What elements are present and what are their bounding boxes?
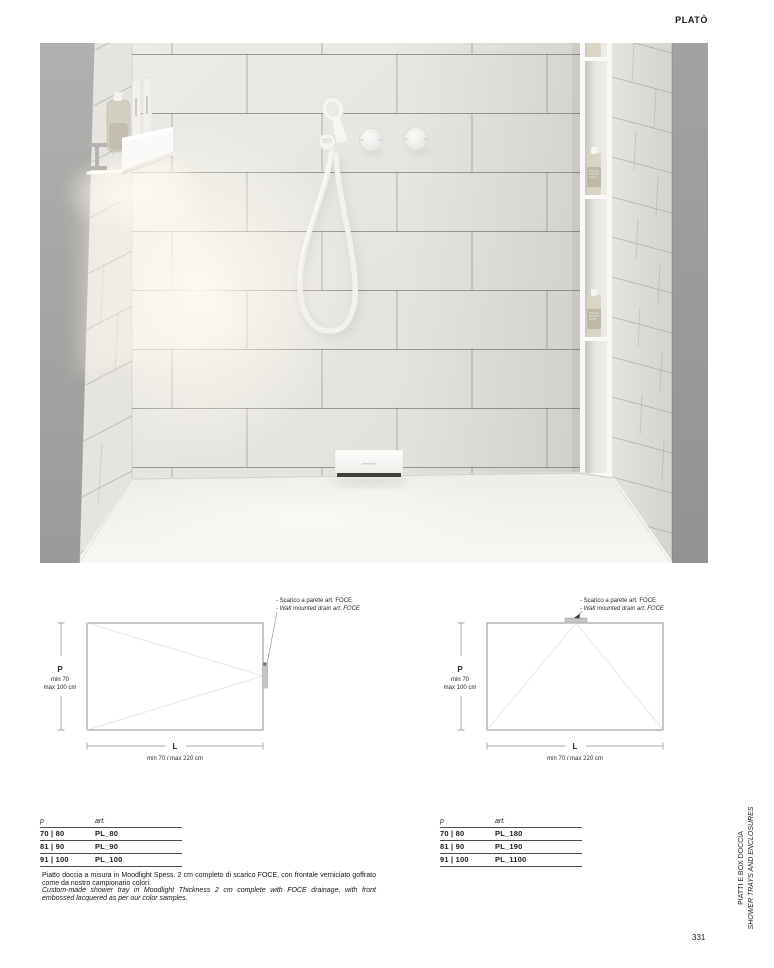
annotation-leader-line	[267, 612, 277, 664]
product-photo	[40, 43, 708, 563]
table-row: 91 | 100 PL_100	[40, 854, 182, 867]
section-label-english: SHOWER TRAYS AND ENCLOSURES	[747, 782, 757, 954]
size-value: 70 | 80	[440, 829, 495, 838]
col-header-art: art.	[495, 818, 582, 825]
p-dimension-label: P	[457, 665, 463, 674]
drain-marker	[263, 665, 268, 688]
article-code: PL_190	[495, 842, 582, 851]
size-value: 70 | 80	[40, 829, 95, 838]
col-header-p: p	[40, 818, 95, 825]
col-header-art: art.	[95, 818, 182, 825]
right-wall	[612, 43, 672, 561]
section-label-italian: PIATTI E BOX DOCCIA	[737, 782, 747, 954]
table-header-row: p art.	[440, 814, 582, 828]
drain-cover	[331, 450, 407, 486]
drain-annotation-en: - Wall mounted drain art. FOCE	[276, 606, 361, 612]
size-value: 91 | 100	[40, 855, 95, 864]
page-number: 331	[692, 933, 705, 942]
table-row: 91 | 100 PL_1100	[440, 854, 582, 867]
right-gray-wall	[672, 43, 708, 563]
p-max-label: max 100 cm	[44, 685, 77, 691]
l-dimension-label: L	[573, 742, 578, 751]
niche-shelving	[572, 43, 612, 479]
table-row: 81 | 90 PL_190	[440, 841, 582, 854]
drain-annotation-it: - Scarico a parete art. FOCE	[276, 598, 352, 604]
l-dimension-label: L	[173, 742, 178, 751]
size-value: 81 | 90	[40, 842, 95, 851]
drain-marker	[565, 618, 587, 623]
table-header-row: p art.	[40, 814, 182, 828]
section-sidebar: PIATTI E BOX DOCCIA SHOWER TRAYS AND ENC…	[732, 782, 764, 954]
product-description: Piatto doccia a misura in Moodlight Spes…	[42, 872, 376, 902]
page-title: PLATÒ	[675, 15, 708, 25]
technical-diagram-top-drain: P min 70 max 100 cm L min 70 / max 220 c…	[430, 590, 770, 768]
article-code: PL_100	[95, 855, 182, 864]
size-table-2: p art. 70 | 80 PL_180 81 | 90 PL_190 91 …	[440, 814, 582, 867]
table-row: 70 | 80 PL_180	[440, 828, 582, 841]
article-code: PL_180	[495, 829, 582, 838]
article-code: PL_1100	[495, 855, 582, 864]
shower-holder	[319, 134, 336, 151]
article-code: PL_80	[95, 829, 182, 838]
p-min-label: min 70	[51, 677, 70, 683]
technical-diagram-side-drain: P min 70 max 100 cm L min 70 / max 220 c…	[30, 590, 390, 768]
size-value: 81 | 90	[440, 842, 495, 851]
description-italian: Piatto doccia a misura in Moodlight Spes…	[42, 872, 376, 887]
drain-annotation-it: - Scarico a parete art. FOCE	[580, 598, 656, 604]
drain-annotation-en: - Wall mounted drain art. FOCE	[580, 606, 665, 612]
p-max-label: max 100 cm	[444, 685, 477, 691]
l-range-label: min 70 / max 220 cm	[547, 756, 603, 762]
size-table-1: p art. 70 | 80 PL_80 81 | 90 PL_90 91 | …	[40, 814, 182, 867]
annotation-arrowhead	[574, 614, 580, 619]
size-value: 91 | 100	[440, 855, 495, 864]
table-row: 70 | 80 PL_80	[40, 828, 182, 841]
description-english: Custom-made shower tray in Moodlight Thi…	[42, 887, 376, 902]
p-dimension-label: P	[57, 665, 63, 674]
table-row: 81 | 90 PL_90	[40, 841, 182, 854]
col-header-p: p	[440, 818, 495, 825]
l-range-label: min 70 / max 220 cm	[147, 756, 203, 762]
article-code: PL_90	[95, 842, 182, 851]
p-min-label: min 70	[451, 677, 470, 683]
